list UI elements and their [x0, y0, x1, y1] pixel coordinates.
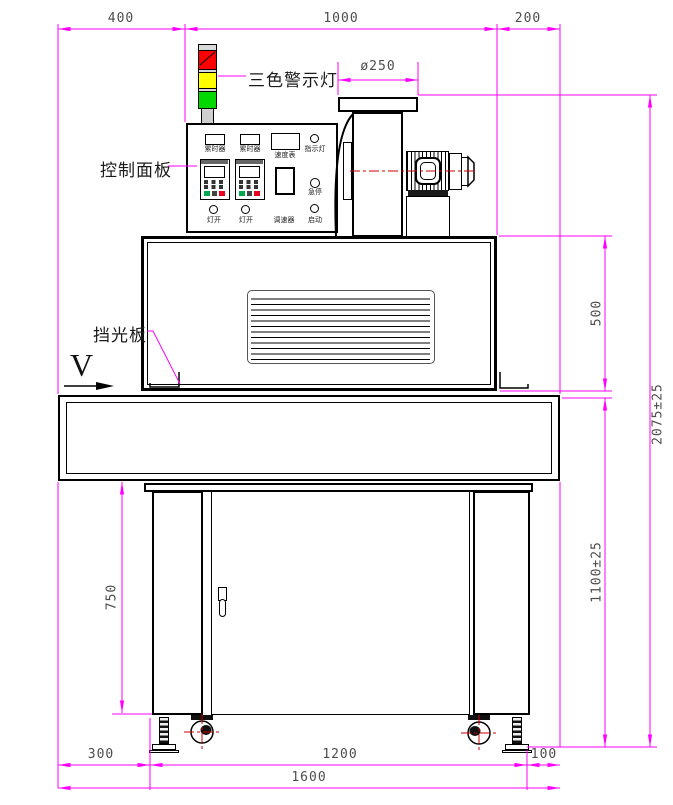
dim-table-height: 1100±25: [590, 541, 605, 603]
motor-nameplate-inner: [420, 162, 436, 180]
tower-red-light: [198, 50, 217, 70]
lamp-switch-left: [209, 205, 218, 214]
vfd-button-row: [239, 185, 260, 189]
indicator-lamp: [310, 134, 319, 143]
vfd-screen: [204, 166, 225, 178]
vfd-header: [236, 160, 263, 164]
motor-end-cap-step: [461, 157, 469, 186]
leveling-foot-left-stem: [159, 717, 169, 744]
lamp-switch-right-label: 灯开: [226, 217, 266, 225]
timer-right-label: 累时器: [231, 146, 269, 154]
dim-bottom-right: 100: [531, 747, 557, 762]
vfd-red-button: [254, 191, 260, 196]
dim-oven-height: 500: [590, 300, 605, 326]
control-box: 累时器 累时器 速度表 指示灯 急停: [186, 123, 338, 233]
door-handle-grip: [219, 599, 226, 617]
start-button-label: 启动: [295, 217, 335, 225]
vfd-mode-button: [247, 191, 252, 196]
timer-display-right: [240, 134, 260, 145]
motor-nameplate: [415, 157, 441, 185]
dim-top-middle: 1000: [323, 11, 358, 26]
vfd-red-button: [219, 191, 225, 196]
leveling-foot-left-pad: [149, 750, 179, 753]
dim-top-right: 200: [515, 11, 541, 26]
timer-left-label: 累时器: [196, 146, 234, 154]
vfd-mode-button: [212, 191, 217, 196]
timer-display-left: [205, 134, 225, 145]
dim-bottom-left: 300: [88, 747, 114, 762]
direction-arrow: [64, 382, 114, 390]
dim-overall-width: 1600: [291, 770, 326, 785]
lamp-switch-right: [241, 205, 250, 214]
light-shield-right: [500, 372, 528, 388]
vfd-green-button: [204, 191, 210, 196]
leveling-foot-right-stem: [512, 717, 522, 744]
dim-overall-height: 2075±25: [651, 383, 666, 445]
leveling-foot-right-pad: [502, 750, 532, 753]
velocity-label: V: [70, 348, 93, 382]
emergency-stop-button: [310, 178, 320, 188]
caster-right: [468, 715, 490, 744]
control-panel-label: 控制面板: [100, 156, 172, 181]
vfd-button-row: [204, 185, 225, 189]
cabinet-door: [211, 491, 470, 715]
vfd-header: [201, 160, 228, 164]
indicator-lamp-label: 指示灯: [295, 146, 335, 154]
tower-light-label: 三色警示灯: [248, 66, 338, 91]
vfd-screen: [239, 166, 260, 178]
blower-side-tab: [343, 142, 352, 200]
technical-drawing: 累时器 累时器 速度表 指示灯 急停: [0, 0, 673, 805]
light-shield-label: 挡光板: [93, 321, 147, 346]
stand-left-leg-panel: [152, 491, 203, 715]
vfd-controller-left: [200, 159, 230, 200]
blower-housing: [352, 112, 403, 237]
start-button: [310, 204, 319, 213]
vfd-green-button: [239, 191, 245, 196]
dim-fan-outlet-diameter: ø250: [360, 59, 395, 74]
emergency-stop-label: 急停: [295, 189, 335, 197]
stand-right-leg-panel: [473, 491, 530, 715]
louver-vent: [247, 290, 435, 364]
dim-stand-height: 750: [105, 584, 120, 610]
dim-bottom-middle: 1200: [322, 747, 357, 762]
vfd-button-row: [204, 180, 225, 184]
tower-green-light: [198, 91, 217, 109]
vfd-button-row: [239, 180, 260, 184]
vfd-controller-right: [235, 159, 265, 200]
speed-regulator-knob: [275, 167, 295, 195]
tower-yellow-light: [198, 72, 217, 89]
tower-base: [201, 108, 214, 124]
caster-left: [191, 715, 213, 743]
motor-pedestal: [406, 196, 450, 237]
dim-top-left: 400: [108, 11, 134, 26]
louver-slats: [251, 294, 430, 360]
blower-outlet-flange: [338, 97, 418, 112]
conveyor-table-inner: [66, 402, 552, 474]
